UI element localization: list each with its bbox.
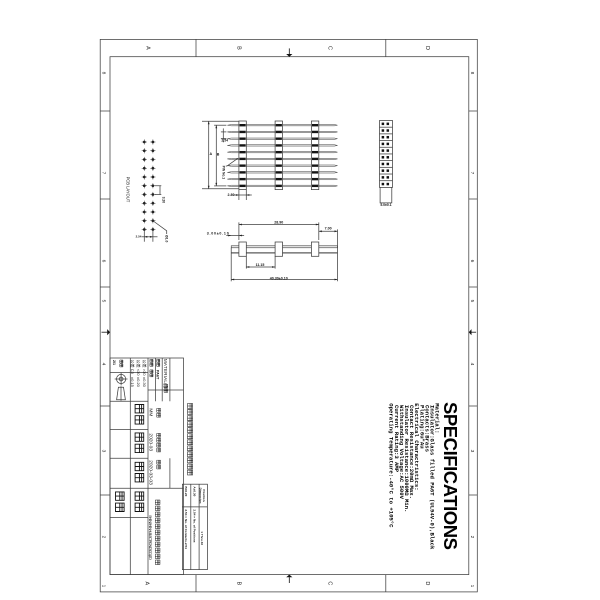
svg-text:PIN No.1: PIN No.1 (221, 166, 225, 180)
svg-text:3.00±0.10: 3.00±0.10 (207, 231, 229, 235)
svg-text:7: 7 (469, 172, 475, 175)
svg-text:B: B (235, 582, 241, 586)
svg-text:2.54: 2.54 (136, 235, 142, 239)
svg-text:2.80: 2.80 (227, 193, 234, 197)
svg-text:2.54 × No. of Positions: 2.54 × No. of Positions (193, 509, 197, 542)
svg-text:D: D (424, 46, 430, 50)
svg-text:5: 5 (469, 300, 475, 303)
svg-text:6: 6 (469, 260, 475, 263)
svg-text:8: 8 (469, 72, 475, 75)
svg-text:5.0±0.1: 5.0±0.1 (380, 203, 391, 207)
svg-text:5: 5 (100, 300, 106, 303)
svg-text:公差 <30: 公差 <30 (136, 360, 142, 377)
svg-text:1 Thru 40: 1 Thru 40 (200, 531, 204, 545)
svg-text:2020-03-03: 2020-03-03 (148, 460, 154, 485)
svg-text:±0.30: ±0.30 (142, 377, 147, 388)
svg-text:C: C (327, 581, 333, 585)
svg-text:PCB LAYOUT: PCB LAYOUT (125, 177, 130, 203)
svg-text:4: 4 (469, 363, 475, 366)
svg-text:A: A (209, 152, 212, 156)
svg-text:D: D (424, 581, 430, 585)
svg-text:C: C (327, 46, 333, 50)
svg-text:Ø1.0: Ø1.0 (164, 235, 168, 242)
svg-text:Dimension: Dimension (198, 488, 202, 504)
svg-text:2: 2 (469, 536, 475, 539)
svg-text:3.20: 3.20 (162, 197, 166, 204)
svg-text:±0.20: ±0.20 (136, 377, 141, 388)
svg-text:1: 1 (469, 585, 475, 588)
svg-text:B±0.20: B±0.20 (184, 486, 188, 496)
svg-text:2.54 × No. of Contacts-2.54: 2.54 × No. of Contacts-2.54 (184, 509, 188, 549)
svg-text:6: 6 (100, 260, 106, 263)
svg-text:Operating Temperature:-40°C to: Operating Temperature:-40°C to +105°C (388, 403, 395, 528)
svg-text:B: B (235, 46, 241, 50)
svg-text:MM: MM (148, 408, 154, 416)
svg-text:B: B (217, 153, 220, 157)
svg-text:3: 3 (100, 450, 106, 453)
svg-text:2020-03: 2020-03 (148, 433, 154, 451)
svg-text:±0.15: ±0.15 (130, 377, 135, 388)
svg-text:A±0.30: A±0.30 (193, 486, 197, 496)
svg-text:7: 7 (100, 172, 106, 175)
svg-text:公差 C3: 公差 C3 (130, 360, 136, 375)
svg-text:1: 1 (100, 585, 106, 588)
svg-text:A: A (143, 582, 149, 586)
svg-text:SHENZHEN HL ELECTRONICS CO.,LT: SHENZHEN HL ELECTRONICS CO.,LTD (148, 515, 153, 560)
svg-text:11.15: 11.15 (256, 263, 265, 267)
svg-text:A: A (145, 46, 151, 50)
svg-text:MATERIAL( ): MATERIAL( ) (163, 359, 168, 388)
svg-text:2/1: 2/1 (112, 360, 116, 365)
svg-text:28.90: 28.90 (274, 220, 283, 224)
svg-text:SPECIFICATIONS: SPECIFICATIONS (440, 402, 461, 550)
svg-text:7.00: 7.00 (325, 227, 332, 231)
svg-text:PA6T: PA6T (156, 370, 160, 380)
svg-text:2.54: 2.54 (221, 138, 228, 142)
svg-text:3: 3 (469, 450, 475, 453)
svg-text:公差 >30: 公差 >30 (142, 360, 148, 377)
svg-text:40.30±0.10: 40.30±0.10 (270, 277, 288, 281)
svg-text:2: 2 (100, 536, 106, 539)
svg-text:4: 4 (100, 363, 106, 366)
svg-text:8: 8 (100, 72, 106, 75)
